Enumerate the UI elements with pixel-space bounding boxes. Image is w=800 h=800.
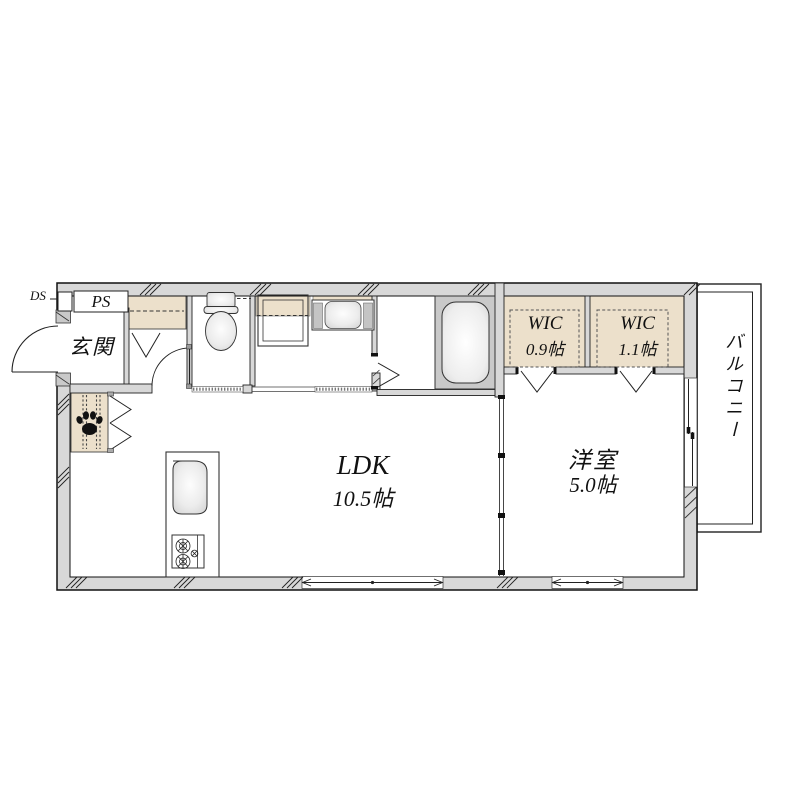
partition-stop — [498, 513, 505, 518]
vanity-side — [314, 303, 323, 329]
entrance-label: 玄関 — [58, 331, 126, 361]
ldk-label: LDK — [288, 450, 438, 481]
wall-bath-wic — [495, 283, 504, 397]
folding-door-mark — [132, 333, 160, 357]
wall-toilet-washroom — [250, 296, 255, 386]
accordion-door-mark — [110, 396, 131, 450]
bathroom — [371, 296, 495, 390]
partition-stop — [498, 395, 505, 399]
door-hinge — [187, 345, 192, 350]
floor-plan-drawing — [0, 0, 800, 800]
wic-right-label: WIC — [591, 313, 684, 335]
ds-box — [58, 292, 72, 311]
balcony-label: バルコニー — [704, 332, 746, 502]
balcony-sliding-window — [685, 378, 698, 487]
door-cap — [108, 392, 114, 396]
toilet-tank — [207, 293, 235, 308]
door-arc — [152, 348, 190, 386]
entrance-door-arc — [12, 326, 58, 372]
wall-cap — [56, 310, 71, 323]
ldk-south-window — [302, 577, 443, 589]
wall-ldk-north — [70, 384, 152, 393]
folding-door-mark — [521, 371, 553, 392]
vanity-sink — [325, 302, 361, 329]
ldk-size-label: 10.5帖 — [288, 481, 438, 513]
wall-wic-south — [556, 367, 616, 374]
pipe-space-label: PS — [74, 291, 128, 312]
sliding-track — [252, 387, 315, 392]
floor-plan-page: DS PS 玄関 LDK 10.5帖 洋室 5.0帖 WIC 0.9帖 WIC … — [0, 0, 800, 800]
sliding-doors — [192, 387, 372, 393]
kitchen-sink — [173, 461, 207, 514]
pet-space — [71, 392, 108, 452]
wall-cap — [615, 367, 618, 374]
hall-door — [152, 345, 192, 389]
window-center-tick — [371, 581, 374, 584]
wall-cap — [653, 367, 656, 374]
wall-cap — [371, 386, 378, 390]
wall-wic-south — [504, 367, 517, 374]
panel-handle — [691, 433, 695, 440]
wall-cap — [554, 367, 557, 374]
bathtub — [442, 302, 489, 383]
wall-bath-south — [377, 390, 495, 396]
wall-cap — [371, 353, 378, 357]
wall-cap — [516, 367, 519, 374]
folding-door-mark — [620, 371, 652, 392]
partition-stop — [498, 570, 505, 575]
bath-folding-door — [378, 363, 399, 387]
wall-cap — [56, 373, 71, 386]
bedroom-south-window — [552, 577, 623, 589]
room-partition — [498, 395, 505, 576]
western-room-size-label: 5.0帖 — [518, 469, 668, 499]
toilet — [204, 293, 251, 351]
kitchen — [166, 452, 219, 577]
panel-handle — [687, 427, 691, 434]
wic-left-size-label: 0.9帖 — [504, 335, 586, 360]
partition-stop — [498, 453, 505, 458]
partition-tracks — [500, 397, 504, 576]
wall-wic-south — [655, 367, 684, 374]
wic-right-size-label: 1.1帖 — [591, 335, 684, 360]
duct-space-label: DS — [30, 288, 52, 304]
wall-stub — [243, 385, 252, 393]
window-center-tick — [586, 581, 589, 584]
toilet-bowl — [206, 312, 237, 351]
door-cap — [108, 449, 114, 453]
door-hinge — [187, 384, 192, 389]
wic-left-label: WIC — [504, 313, 586, 335]
vanity-side — [364, 303, 373, 329]
gas-stove — [172, 535, 204, 568]
